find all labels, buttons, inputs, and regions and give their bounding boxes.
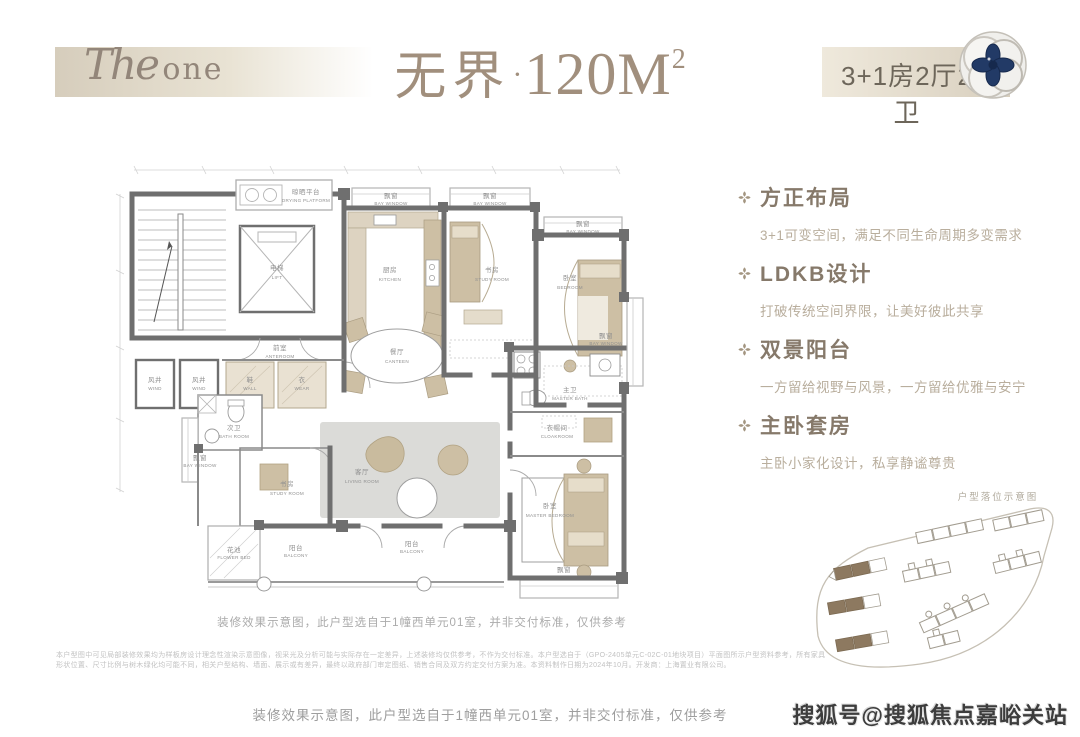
label-masterbath-en: MASTER BATH bbox=[552, 396, 588, 401]
desk bbox=[464, 310, 502, 324]
feature-title: 双景阳台 bbox=[760, 334, 852, 364]
footer-caption: 装修效果示意图，此户型选自于1幢西单元01室，并非交付标准，仅供参考 bbox=[180, 704, 800, 724]
label-bay5-cn: 飘窗 bbox=[193, 453, 207, 462]
master-bedroom: 卧室 MASTER BEDROOM bbox=[510, 459, 608, 579]
dining-area: 餐厅 CANTEEN bbox=[342, 312, 447, 398]
label-living-en: LIVING ROOM bbox=[345, 479, 379, 484]
site-buildings bbox=[901, 510, 1044, 649]
label-bay2-en: BAY WINDOW bbox=[473, 201, 507, 206]
label-canteen-cn: 餐厅 bbox=[390, 347, 404, 356]
feature-title: LDKB设计 bbox=[760, 258, 872, 288]
label-shoe-cn: 鞋 bbox=[247, 375, 254, 384]
feature-item-ldkb: LDKB设计 打破传统空间界限，让美好彼此共享 bbox=[738, 258, 984, 320]
sohu-watermark: 搜狐号@搜狐焦点嘉峪关站 bbox=[793, 698, 1068, 730]
label-bay6-cn: 飘窗 bbox=[557, 565, 571, 574]
site-highlighted-buildings bbox=[827, 558, 888, 652]
label-bath2-cn: 次卫 bbox=[227, 423, 241, 432]
feature-desc: 3+1可变空间，满足不同生命周期多变需求 bbox=[760, 224, 1022, 244]
label-bay3-cn: 飘窗 bbox=[576, 219, 590, 228]
label-bay2-cn: 飘窗 bbox=[483, 191, 497, 200]
camellia-flower-icon bbox=[952, 24, 1034, 111]
label-wear-en: WEAR bbox=[295, 386, 310, 391]
label-wind1-en: WIND bbox=[148, 386, 162, 391]
feature-desc: 主卧小家化设计，私享静谧尊贵 bbox=[760, 452, 956, 472]
label-bay1-en: BAY WINDOW bbox=[374, 201, 408, 206]
balcony-west: 阳台 BALCONY bbox=[284, 543, 308, 558]
poster-page: The one 无界·120M2 3+1房2厅2卫 方正布局 3+ bbox=[0, 0, 1080, 737]
ottoman bbox=[438, 445, 468, 475]
label-living-cn: 客厅 bbox=[355, 467, 369, 476]
label-bay4-cn: 飘窗 bbox=[599, 331, 613, 340]
feature-item-master-suite: 主卧套房 主卧小家化设计，私享静谧尊贵 bbox=[738, 410, 956, 472]
label-anteroom-cn: 前室 bbox=[273, 343, 287, 352]
label-cloakroom-cn: 衣帽间 bbox=[547, 423, 568, 432]
label-flowerbed-en: FLOWER BED bbox=[217, 555, 251, 560]
bathroom-second: 次卫 BATH ROOM bbox=[198, 395, 262, 450]
label-lift-en: LIFT bbox=[272, 275, 283, 280]
feature-item-layout: 方正布局 3+1可变空间，满足不同生命周期多变需求 bbox=[738, 182, 1022, 244]
flower-bed: 花池 FLOWER BED bbox=[208, 526, 260, 580]
label-anteroom-en: ANTEROOM bbox=[266, 354, 295, 359]
label-wind1-cn: 风井 bbox=[148, 375, 162, 384]
floor-plan: 电梯 LIFT 晾晒平台 DRYING PLATFORM 厨房 KITCHEN bbox=[112, 160, 732, 620]
label-wind2-en: WIND bbox=[192, 386, 206, 391]
label-study1-cn: 书房 bbox=[485, 265, 499, 274]
cloakroom: 衣帽间 CLOAKROOM bbox=[541, 416, 612, 442]
label-shoe-en: WALL bbox=[243, 386, 257, 391]
study-room-bottom: 书房 STUDY ROOM bbox=[240, 448, 332, 526]
drying-platform: 晾晒平台 DRYING PLATFORM bbox=[236, 180, 332, 210]
disclaimer-line1: 本户型图中可见局部装修效果均为样板房设计理念性渲染示意图像，视采光及分析可能与实… bbox=[56, 651, 991, 661]
master-bath: 主卫 MASTER BATH bbox=[514, 352, 620, 406]
label-wind2-cn: 风井 bbox=[192, 375, 206, 384]
feature-desc: 打破传统空间界限，让美好彼此共享 bbox=[760, 300, 984, 320]
label-lift-cn: 电梯 bbox=[270, 263, 284, 272]
label-bedroom-cn: 卧室 bbox=[563, 273, 577, 282]
bay-window-master: 飘窗 BAY WINDOW bbox=[520, 565, 618, 598]
label-bay1-cn: 飘窗 bbox=[384, 191, 398, 200]
four-petal-icon bbox=[738, 191, 751, 204]
label-cloakroom-en: CLOAKROOM bbox=[541, 434, 574, 439]
title-dot: · bbox=[512, 58, 522, 91]
label-bay4-en: BAY WINDOW bbox=[589, 341, 623, 346]
label-wear-cn: 衣 bbox=[299, 375, 306, 384]
label-study2-cn: 书房 bbox=[280, 479, 294, 488]
label-masterbed-en: MASTER BEDROOM bbox=[526, 513, 574, 518]
label-balcony2-en: BALCONY bbox=[400, 549, 424, 554]
feature-desc: 一方留给视野与风景，一方留给优雅与安宁 bbox=[760, 376, 1026, 396]
dining-table bbox=[351, 329, 443, 383]
label-bath2-en: BATH ROOM bbox=[219, 434, 249, 439]
feature-item-balcony: 双景阳台 一方留给视野与风景，一方留给优雅与安宁 bbox=[738, 334, 1026, 396]
study-room-top: 飘窗 BAY WINDOW 书房 STUDY ROOM bbox=[450, 188, 534, 358]
label-kitchen-en: KITCHEN bbox=[379, 277, 401, 282]
label-bay5-en: BAY WINDOW bbox=[183, 463, 217, 468]
four-petal-icon bbox=[738, 267, 751, 280]
label-study1-en: STUDY ROOM bbox=[475, 277, 509, 282]
elevator: 电梯 LIFT bbox=[240, 226, 314, 312]
plan-caption: 装修效果示意图，此户型选自于1幢西单元01室，并非交付标准，仅供参考 bbox=[112, 614, 732, 630]
label-masterbed-cn: 卧室 bbox=[543, 501, 557, 510]
label-bedroom-en: BEDROOM bbox=[557, 285, 583, 290]
label-balcony1-en: BALCONY bbox=[284, 553, 308, 558]
four-petal-icon bbox=[738, 343, 751, 356]
living-room: 客厅 LIVING ROOM bbox=[320, 422, 500, 518]
four-petal-icon bbox=[738, 419, 751, 432]
label-balcony1-cn: 阳台 bbox=[289, 543, 303, 552]
label-study2-en: STUDY ROOM bbox=[270, 491, 304, 496]
label-drying-cn: 晾晒平台 bbox=[292, 187, 320, 196]
label-canteen-en: CANTEEN bbox=[385, 359, 409, 364]
feature-title: 方正布局 bbox=[760, 182, 852, 212]
label-masterbath-cn: 主卫 bbox=[563, 385, 577, 394]
label-balcony2-cn: 阳台 bbox=[405, 539, 419, 548]
title-cn: 无界 bbox=[394, 49, 510, 106]
site-plan-title: 户型落位示意图 bbox=[958, 491, 1039, 503]
legal-disclaimer: 本户型图中可见局部装修效果均为样板房设计理念性渲染示意图像，视采光及分析可能与实… bbox=[56, 651, 991, 670]
label-flowerbed-cn: 花池 bbox=[227, 545, 241, 554]
feature-title: 主卧套房 bbox=[760, 410, 852, 440]
bay-window-kitchen: 飘窗 BAY WINDOW bbox=[352, 188, 430, 208]
title-sup: 2 bbox=[672, 44, 686, 75]
disclaimer-line2: 形状位置、尺寸比例与树木绿化均可能不同，相关户型结构、墙面、展示或有差异，最终以… bbox=[56, 661, 991, 671]
title-area: 120M bbox=[524, 41, 671, 107]
label-drying-en: DRYING PLATFORM bbox=[282, 198, 330, 203]
coffee-table bbox=[397, 478, 437, 518]
label-kitchen-cn: 厨房 bbox=[383, 265, 397, 274]
